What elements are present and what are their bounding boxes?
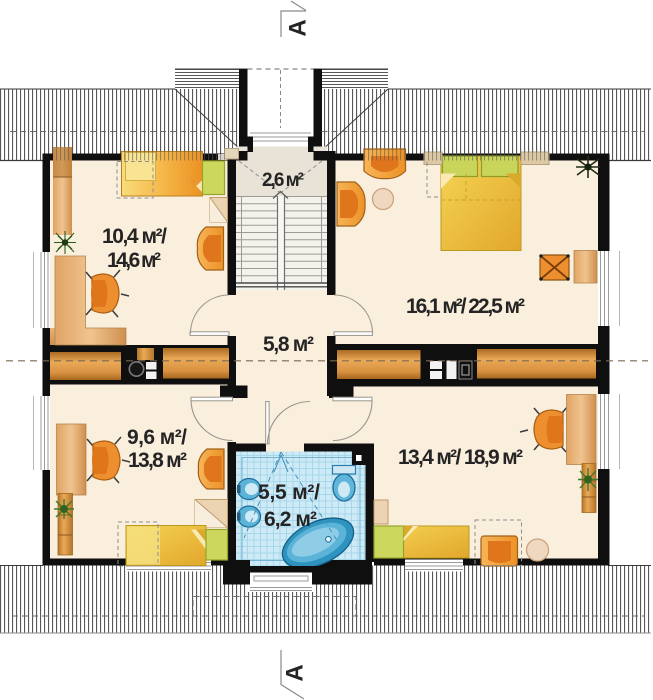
- svg-text:6,2 м²: 6,2 м²: [264, 508, 317, 531]
- svg-text:13,4 м²/ 18,9 м²: 13,4 м²/ 18,9 м²: [398, 446, 523, 469]
- svg-text:5,5 м²/: 5,5 м²/: [258, 481, 320, 504]
- svg-text:13,8 м²: 13,8 м²: [128, 449, 187, 472]
- svg-text:5,8 м²: 5,8 м²: [263, 333, 314, 356]
- svg-text:9,6 м²/: 9,6 м²/: [127, 426, 187, 449]
- svg-text:A: A: [282, 664, 309, 681]
- svg-text:16,1 м²/ 22,5 м²: 16,1 м²/ 22,5 м²: [406, 295, 525, 318]
- svg-text:10,4 м²/: 10,4 м²/: [102, 225, 167, 248]
- svg-text:14,6 м²: 14,6 м²: [107, 249, 161, 272]
- svg-text:A: A: [285, 19, 312, 36]
- svg-text:2,6 м²: 2,6 м²: [262, 170, 304, 191]
